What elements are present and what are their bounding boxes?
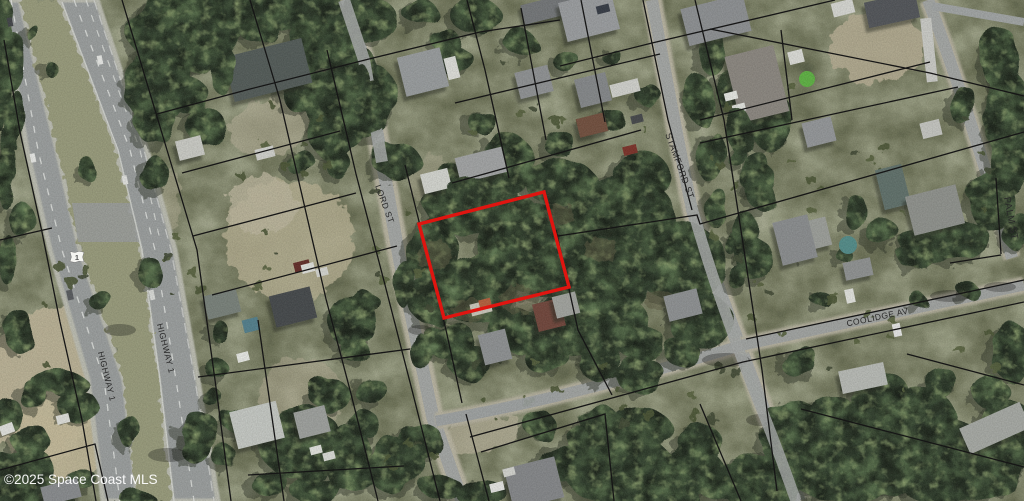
svg-text:1: 1 [75,253,79,262]
svg-text:©2025 Space Coast MLS: ©2025 Space Coast MLS [4,472,158,487]
